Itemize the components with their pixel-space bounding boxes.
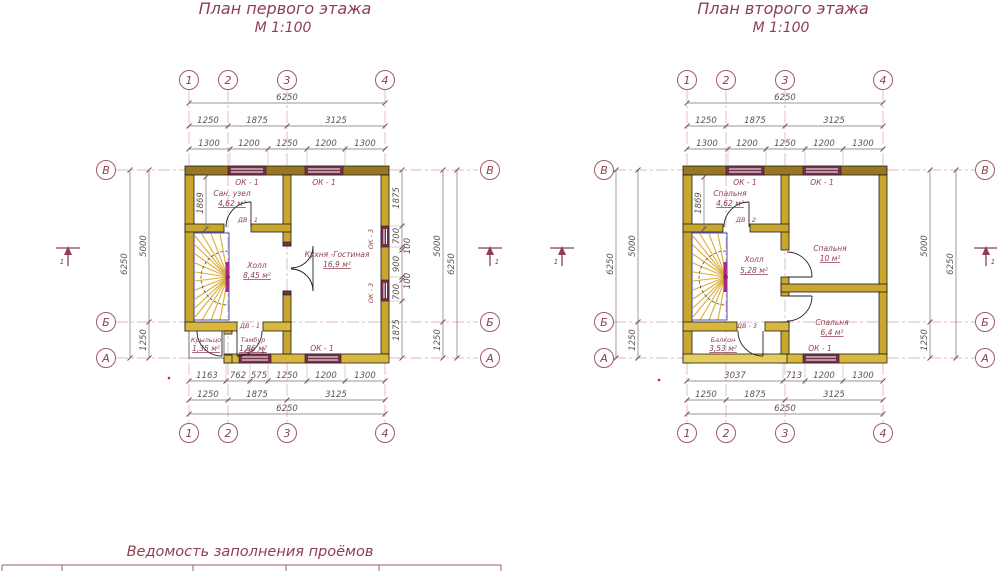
dim-label: 5000 xyxy=(920,235,930,257)
dim-label: 3125 xyxy=(325,390,347,400)
opening-tag: ОК - 1 xyxy=(733,178,756,187)
room-area: 3,53 м² xyxy=(709,344,737,353)
dim-label: 1200 xyxy=(315,139,337,149)
dim-label: 1250 xyxy=(276,371,298,381)
room-name: Кухня -Гостиная xyxy=(305,250,370,259)
grid-bubble-label: 3 xyxy=(782,427,789,440)
opening-tag: ОК - 3 xyxy=(367,283,375,303)
opening-tag: ДВ - 1 xyxy=(237,216,258,224)
grid-bubble-label: Б xyxy=(981,316,989,329)
grid-bubble-label: 3 xyxy=(284,427,291,440)
room-area: 4,62 м² xyxy=(218,199,246,208)
dim-label: 5000 xyxy=(139,235,149,257)
dim-label: 713 xyxy=(786,371,802,381)
dim-label: 1200 xyxy=(736,139,758,149)
dim-label: 1869 xyxy=(694,192,704,214)
section-label: 1 xyxy=(60,258,64,266)
opening-tag: ОК - 2 xyxy=(245,347,265,355)
opening-tag: ДВ - 3 xyxy=(736,322,757,330)
dim-label: 1200 xyxy=(238,139,260,149)
dim-label: 1250 xyxy=(197,390,219,400)
dim-label: 1163 xyxy=(196,371,218,381)
stray-dot xyxy=(658,379,661,382)
dim-label: 6250 xyxy=(447,253,457,275)
opening-tag: ОК - 1 xyxy=(810,178,833,187)
dim-label: 1875 xyxy=(744,390,766,400)
dim-label: 1300 xyxy=(354,371,376,381)
grid-bubble-label: А xyxy=(101,352,110,365)
dim-label: 6250 xyxy=(946,253,956,275)
cad-canvas: 1 2 3 4 1 2 3 4 В Б А В Б А 1 2 3 4 1 2 … xyxy=(0,0,1000,571)
opening-tag: ОК - 3 xyxy=(367,229,375,249)
dim-label: 575 xyxy=(251,371,267,381)
room-area: 8,45 м² xyxy=(243,271,271,280)
stair-flight-marker xyxy=(724,262,728,292)
room-name: Спальня xyxy=(815,318,849,327)
opening-tag: ОК - 1 xyxy=(808,344,831,353)
grid-bubble-label: 4 xyxy=(880,427,887,440)
room-name: Крыльцо xyxy=(191,336,221,344)
grid-bubble-label: 3 xyxy=(284,74,291,87)
opening-tag: ОК - 1 xyxy=(235,178,258,187)
dim-label: 6250 xyxy=(276,404,298,414)
grid-bubble-label: 1 xyxy=(684,74,691,87)
opening-tag: ДВ - 1 xyxy=(239,322,260,330)
grid-bubble-label: В xyxy=(486,164,494,177)
grid-bubble-label: 2 xyxy=(225,427,232,440)
room-area: 10 м² xyxy=(820,254,841,263)
room-name: Тамбур xyxy=(241,336,266,344)
dim-label: 6250 xyxy=(774,404,796,414)
plan2-scale: М 1:100 xyxy=(753,20,810,36)
dim-label: 1875 xyxy=(744,116,766,126)
room-name: Спальня xyxy=(713,189,747,198)
dim-label: 1250 xyxy=(920,329,930,351)
dim-label: 1300 xyxy=(198,139,220,149)
dim-label: 1300 xyxy=(852,371,874,381)
plan1-title: План первого этажа xyxy=(199,0,372,18)
schedule-title: Ведомость заполнения проёмов xyxy=(127,544,374,560)
dim-label: 1250 xyxy=(139,329,149,351)
dim-label: 1875 xyxy=(392,187,402,209)
dim-label: 1875 xyxy=(392,319,402,341)
room-area: 6,4 м² xyxy=(821,328,844,337)
dim-label: 6250 xyxy=(276,93,298,103)
dim-label: 1250 xyxy=(197,116,219,126)
dim-label: 762 xyxy=(230,371,246,381)
dim-label: 3125 xyxy=(823,116,845,126)
dim-label: 1200 xyxy=(813,139,835,149)
grid-bubble-label: 2 xyxy=(723,74,730,87)
dim-label: 6250 xyxy=(774,93,796,103)
grid-bubble-label: 1 xyxy=(186,427,193,440)
plan1-scale: М 1:100 xyxy=(255,20,312,36)
grid-bubble-label: 2 xyxy=(225,74,232,87)
room-area: 16,9 м² xyxy=(323,260,351,269)
dim-label: 3125 xyxy=(325,116,347,126)
grid-bubble-label: Б xyxy=(102,316,110,329)
grid-bubble-label: Б xyxy=(486,316,494,329)
grid-bubble-label: А xyxy=(980,352,989,365)
dim-label: 1250 xyxy=(695,390,717,400)
grid-bubble-label: А xyxy=(485,352,494,365)
grid-bubble-label: 4 xyxy=(382,427,389,440)
dim-label: 1200 xyxy=(315,371,337,381)
stair-flight-marker xyxy=(226,262,230,292)
grid-bubble-label: В xyxy=(600,164,608,177)
section-label: 1 xyxy=(495,258,499,266)
opening-tag: ОК - 1 xyxy=(310,344,333,353)
dim-label: 1250 xyxy=(628,329,638,351)
dim-label: 6250 xyxy=(120,253,130,275)
plan2-title: План второго этажа xyxy=(697,0,869,18)
room-name: Сан. узел xyxy=(213,189,251,198)
grid-bubble-label: 2 xyxy=(723,427,730,440)
room-name: Холл xyxy=(743,255,764,264)
opening-tag: ДВ - 2 xyxy=(735,216,756,224)
dim-label: 700 xyxy=(392,228,402,244)
dim-label: 1250 xyxy=(774,139,796,149)
dim-label: 1250 xyxy=(433,329,443,351)
room-area: 4,62 м² xyxy=(716,199,744,208)
dim-label: 5000 xyxy=(628,235,638,257)
dim-label: 1300 xyxy=(696,139,718,149)
dim-label: 1250 xyxy=(276,139,298,149)
dim-label: 3037 xyxy=(724,371,746,381)
dim-label: 1250 xyxy=(695,116,717,126)
dim-label: 100 xyxy=(403,273,413,289)
dim-label: 1300 xyxy=(354,139,376,149)
dim-label: 5000 xyxy=(433,235,443,257)
section-label: 1 xyxy=(991,258,995,266)
dim-label: 6250 xyxy=(606,253,616,275)
dim-label: 1875 xyxy=(246,390,268,400)
room-area: 5,28 м² xyxy=(740,266,768,275)
grid-bubble-label: 1 xyxy=(186,74,193,87)
grid-bubble-label: 4 xyxy=(880,74,887,87)
grid-bubble-label: 1 xyxy=(684,427,691,440)
dim-label: 100 xyxy=(403,238,413,254)
dim-label: 900 xyxy=(392,256,402,272)
dim-label: 1869 xyxy=(196,192,206,214)
grid-bubble-label: 3 xyxy=(782,74,789,87)
grid-bubble-label: А xyxy=(599,352,608,365)
dim-label: 1300 xyxy=(852,139,874,149)
dim-label: 3125 xyxy=(823,390,845,400)
section-label: 1 xyxy=(554,258,558,266)
room-area: 1,35 м² xyxy=(192,344,220,353)
room-name: Балкон xyxy=(711,336,736,344)
room-name: Спальня xyxy=(813,244,847,253)
dim-label: 1875 xyxy=(246,116,268,126)
grid-bubble-label: В xyxy=(102,164,110,177)
dim-label: 700 xyxy=(392,284,402,300)
room-name: Холл xyxy=(246,261,267,270)
grid-bubble-label: 4 xyxy=(382,74,389,87)
grid-bubble-label: Б xyxy=(600,316,608,329)
stray-dot xyxy=(168,377,171,380)
dim-label: 1200 xyxy=(813,371,835,381)
grid-bubble-label: В xyxy=(981,164,989,177)
floor-plan-drawing: 1 2 3 4 1 2 3 4 В Б А В Б А 1 2 3 4 1 2 … xyxy=(0,0,1000,571)
opening-tag: ОК - 1 xyxy=(312,178,335,187)
